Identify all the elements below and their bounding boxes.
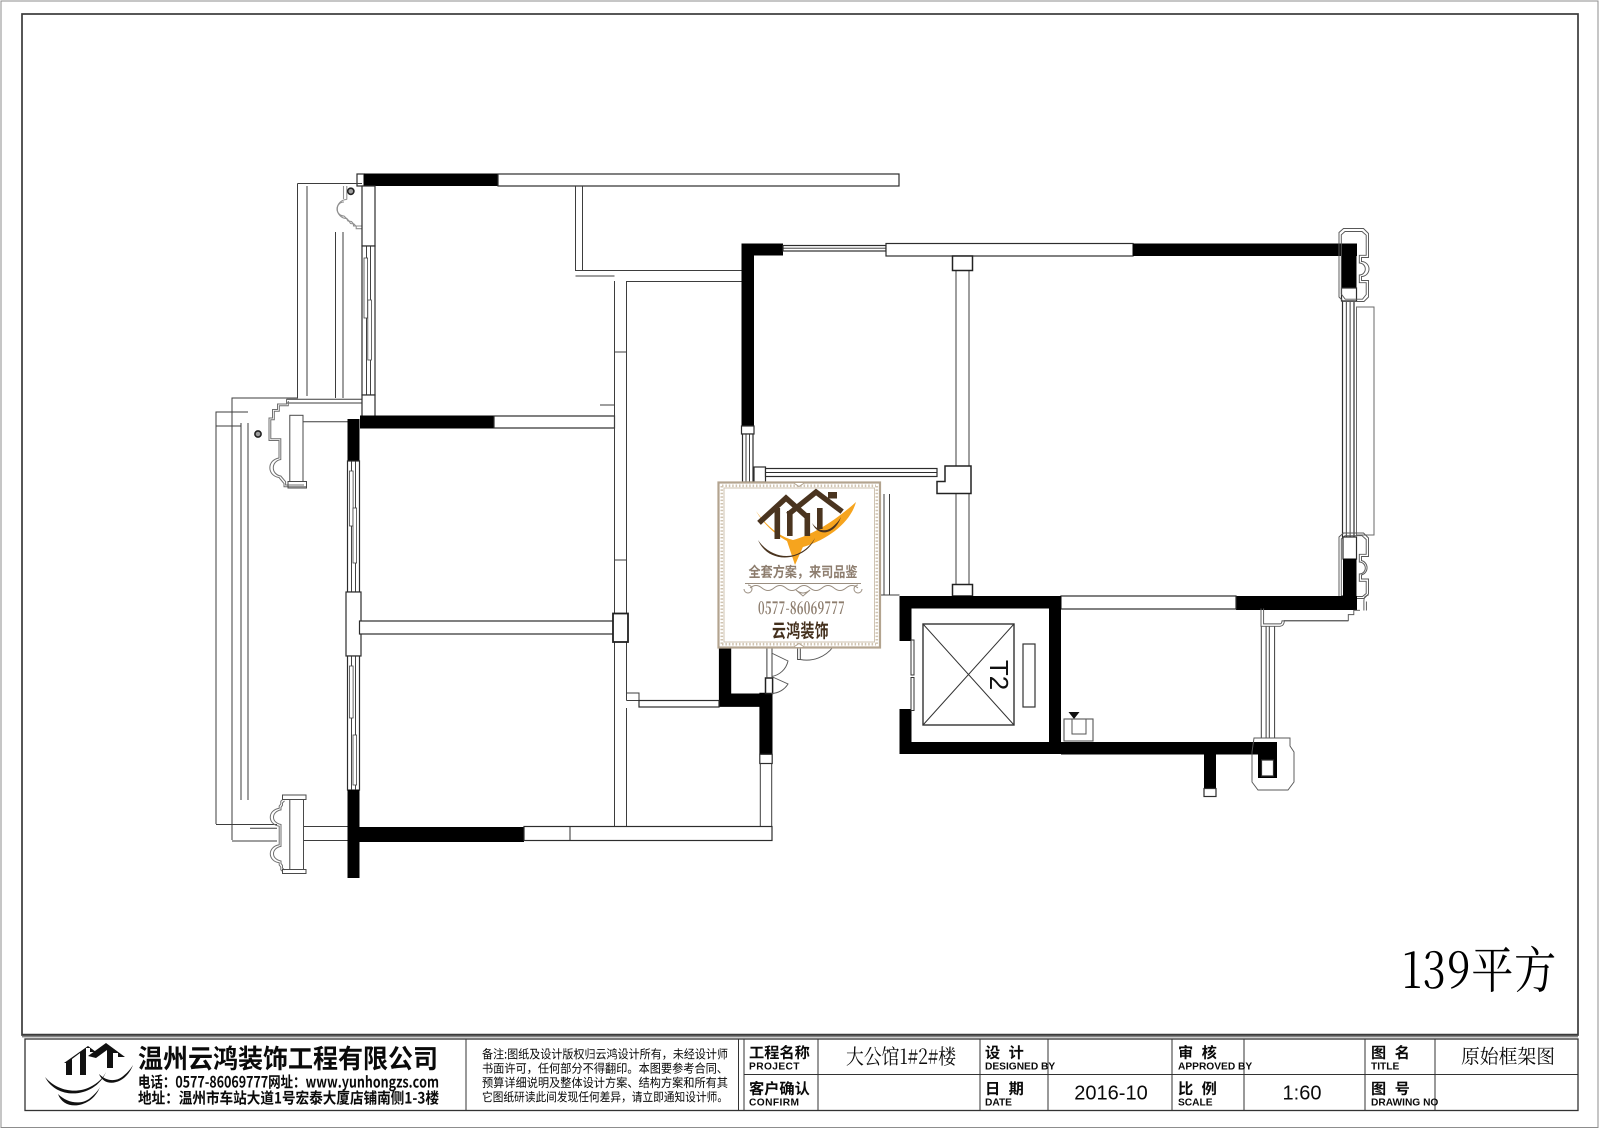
svg-text:DRAWING NO: DRAWING NO xyxy=(1371,1098,1438,1109)
svg-text:DESIGNED BY: DESIGNED BY xyxy=(985,1062,1055,1073)
svg-text:T2: T2 xyxy=(984,660,1014,690)
svg-text:1:60: 1:60 xyxy=(1283,1083,1322,1105)
svg-text:DATE: DATE xyxy=(985,1098,1012,1109)
svg-text:CONFIRM: CONFIRM xyxy=(749,1098,799,1109)
svg-text:APPROVED BY: APPROVED BY xyxy=(1178,1062,1252,1073)
svg-text:TITLE: TITLE xyxy=(1371,1062,1399,1073)
svg-text:SCALE: SCALE xyxy=(1178,1098,1213,1109)
svg-text:PROJECT: PROJECT xyxy=(749,1062,800,1073)
svg-text:2016-10: 2016-10 xyxy=(1074,1083,1147,1105)
